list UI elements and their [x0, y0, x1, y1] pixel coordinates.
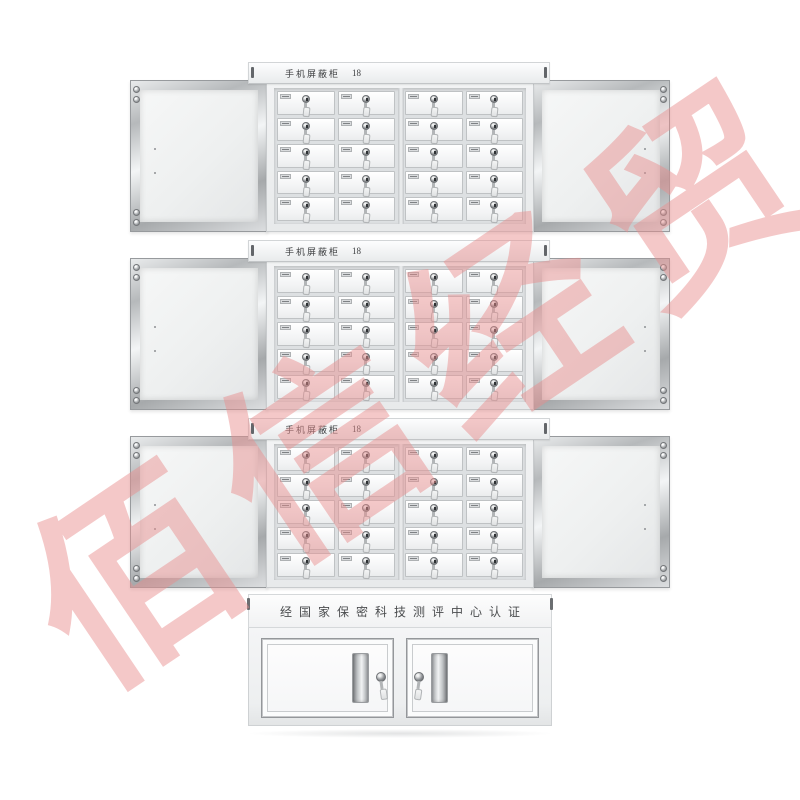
latch-dot — [154, 350, 156, 352]
locker-door — [405, 91, 463, 115]
keyhole-lock-icon — [302, 504, 310, 512]
hinge-pin-icon — [251, 245, 254, 256]
locker-number-tag — [341, 200, 352, 205]
keyhole-lock-icon — [430, 273, 438, 281]
keyhole-lock-icon — [490, 148, 498, 156]
locker-number-tag — [408, 174, 419, 179]
locker-number-tag — [280, 556, 291, 561]
key-with-tag-icon — [432, 209, 435, 213]
left-open-door — [130, 436, 268, 588]
module-capacity: 18 — [352, 68, 361, 78]
locker-number-tag — [341, 378, 352, 383]
key-with-tag-icon — [304, 103, 307, 107]
hinge-screw-icon — [660, 442, 667, 449]
locker-number-tag — [469, 121, 480, 126]
locker-door — [277, 296, 335, 320]
locker-door — [466, 118, 524, 142]
base-door-right — [407, 639, 538, 717]
keyhole-lock-icon — [490, 478, 498, 486]
keyhole-lock-icon — [490, 326, 498, 334]
hinge-screw-icon — [660, 219, 667, 226]
key-with-tag-icon — [304, 512, 307, 516]
locker-door — [338, 553, 396, 577]
locker-number-tag — [469, 94, 480, 99]
locker-number-tag — [341, 299, 352, 304]
locker-number-tag — [280, 200, 291, 205]
key-with-tag-icon — [432, 486, 435, 490]
locker-door — [405, 296, 463, 320]
base-door-left — [262, 639, 393, 717]
certification-strip: 经国家保密科技测评中心认证 — [248, 594, 552, 628]
keyhole-lock-icon — [302, 451, 310, 459]
locker-door — [338, 197, 396, 221]
hinge-screw-icon — [133, 96, 140, 103]
key-with-tag-icon — [364, 308, 367, 312]
keyhole-lock-icon — [362, 478, 370, 486]
locker-number-tag — [408, 556, 419, 561]
keyhole-lock-icon — [302, 95, 310, 103]
hinge-screw-icon — [133, 452, 140, 459]
hinge-screw-icon — [133, 565, 140, 572]
latch-dot — [154, 326, 156, 328]
locker-number-tag — [408, 477, 419, 482]
locker-door — [405, 144, 463, 168]
key-with-tag-icon — [492, 361, 495, 365]
locker-number-tag — [341, 121, 352, 126]
hinge-pin-icon — [247, 598, 250, 610]
locker-number-tag — [408, 121, 419, 126]
locker-door — [405, 474, 463, 498]
locker-number-tag — [408, 503, 419, 508]
locker-door — [277, 171, 335, 195]
locker-number-tag — [469, 503, 480, 508]
locker-door — [405, 500, 463, 524]
locker-door — [277, 197, 335, 221]
locker-door — [277, 91, 335, 115]
keyhole-lock-icon — [430, 353, 438, 361]
keyhole-lock-icon — [362, 201, 370, 209]
locker-number-tag — [280, 147, 291, 152]
hinge-pin-icon — [544, 423, 547, 434]
center-divider — [398, 444, 404, 580]
locker-bay — [274, 444, 526, 580]
locker-door — [405, 269, 463, 293]
locker-number-tag — [469, 325, 480, 330]
keyhole-lock-icon — [302, 478, 310, 486]
locker-number-tag — [280, 121, 291, 126]
key-with-tag-icon — [416, 681, 420, 689]
locker-door — [338, 118, 396, 142]
keyhole-lock-icon — [362, 353, 370, 361]
keyhole-lock-icon — [430, 531, 438, 539]
locker-number-tag — [341, 94, 352, 99]
keyhole-lock-icon — [490, 95, 498, 103]
cabinet-module-2: 手机屏蔽柜18 — [130, 240, 670, 414]
keyhole-lock-icon — [430, 379, 438, 387]
module-title: 手机屏蔽柜 — [285, 67, 340, 80]
locker-door — [277, 375, 335, 399]
locker-door — [466, 527, 524, 551]
latch-dot — [154, 172, 156, 174]
key-with-tag-icon — [364, 512, 367, 516]
locker-number-tag — [408, 272, 419, 277]
locker-door — [405, 553, 463, 577]
locker-door — [338, 171, 396, 195]
module-header: 手机屏蔽柜18 — [248, 240, 550, 262]
module-title: 手机屏蔽柜 — [285, 423, 340, 436]
base-cabinet-body — [248, 628, 552, 726]
locker-number-tag — [280, 272, 291, 277]
key-with-tag-icon — [432, 512, 435, 516]
locker-door — [338, 375, 396, 399]
latch-dot — [154, 504, 156, 506]
locker-number-tag — [341, 272, 352, 277]
hinge-screw-icon — [133, 397, 140, 404]
key-with-tag-icon — [432, 387, 435, 391]
keyhole-lock-icon — [430, 201, 438, 209]
locker-number-tag — [469, 200, 480, 205]
keyhole-lock-icon — [362, 557, 370, 565]
door-inner-panel — [140, 268, 258, 400]
locker-door — [405, 118, 463, 142]
keyhole-lock-icon — [490, 379, 498, 387]
locker-number-tag — [408, 147, 419, 152]
key-with-tag-icon — [432, 130, 435, 134]
locker-number-tag — [469, 352, 480, 357]
key-with-tag-icon — [432, 459, 435, 463]
module-capacity: 18 — [352, 246, 361, 256]
keyhole-lock-icon — [490, 122, 498, 130]
product-photo-shielding-cabinet: 手机屏蔽柜18 手机屏蔽柜18 手机屏蔽柜18 经国家保密科技测评中心认证 佰信… — [0, 0, 800, 800]
hinge-pin-icon — [251, 423, 254, 434]
hinge-pin-icon — [251, 67, 254, 78]
locker-door — [405, 322, 463, 346]
key-with-tag-icon — [304, 281, 307, 285]
keyhole-lock-icon — [302, 148, 310, 156]
locker-number-tag — [341, 325, 352, 330]
locker-number-tag — [469, 450, 480, 455]
key-with-tag-icon — [364, 103, 367, 107]
door-inner-panel — [542, 446, 660, 578]
right-open-door — [532, 80, 670, 232]
hinge-screw-icon — [660, 575, 667, 582]
locker-door — [277, 447, 335, 471]
key-with-tag-icon — [432, 308, 435, 312]
locker-door — [277, 474, 335, 498]
latch-dot — [644, 148, 646, 150]
locker-door — [277, 118, 335, 142]
key-with-tag-icon — [304, 486, 307, 490]
locker-number-tag — [408, 200, 419, 205]
locker-number-tag — [469, 477, 480, 482]
key-with-tag-icon — [492, 103, 495, 107]
hinge-screw-icon — [133, 264, 140, 271]
locker-door — [277, 553, 335, 577]
key-with-tag-icon — [364, 334, 367, 338]
locker-door — [466, 322, 524, 346]
center-divider — [398, 88, 404, 224]
locker-door — [466, 349, 524, 373]
key-with-tag-icon — [432, 361, 435, 365]
locker-number-tag — [341, 450, 352, 455]
locker-bay — [274, 266, 526, 402]
keyhole-lock-icon — [302, 175, 310, 183]
door-handle — [431, 653, 448, 703]
keyhole-lock-icon — [490, 175, 498, 183]
key-with-tag-icon — [432, 281, 435, 285]
latch-dot — [644, 172, 646, 174]
hinge-pin-icon — [544, 245, 547, 256]
latch-dot — [154, 148, 156, 150]
module-body — [266, 261, 534, 410]
locker-number-tag — [341, 556, 352, 561]
locker-number-tag — [469, 147, 480, 152]
locker-door — [466, 91, 524, 115]
key-with-tag-icon — [492, 565, 495, 569]
key-with-tag-icon — [364, 130, 367, 134]
locker-number-tag — [469, 530, 480, 535]
locker-number-tag — [469, 556, 480, 561]
locker-door — [338, 447, 396, 471]
door-handle — [352, 653, 369, 703]
door-inner-panel — [542, 268, 660, 400]
locker-door — [338, 474, 396, 498]
hinge-screw-icon — [660, 452, 667, 459]
locker-door — [338, 269, 396, 293]
key-with-tag-icon — [379, 681, 383, 689]
keyhole-lock-icon — [362, 273, 370, 281]
keyhole-lock-icon — [362, 531, 370, 539]
key-with-tag-icon — [364, 565, 367, 569]
keyhole-lock-icon — [430, 478, 438, 486]
locker-door — [405, 527, 463, 551]
keyhole-lock-icon — [430, 504, 438, 512]
hinge-screw-icon — [660, 264, 667, 271]
locker-door — [466, 269, 524, 293]
key-with-tag-icon — [432, 334, 435, 338]
locker-number-tag — [280, 352, 291, 357]
locker-column-group-left — [276, 268, 396, 400]
key-with-tag-icon — [304, 387, 307, 391]
locker-number-tag — [280, 325, 291, 330]
center-divider — [398, 266, 404, 402]
hinge-pin-icon — [544, 67, 547, 78]
locker-number-tag — [341, 352, 352, 357]
key-with-tag-icon — [364, 281, 367, 285]
key-with-tag-icon — [304, 334, 307, 338]
door-inner-panel — [140, 90, 258, 222]
key-with-tag-icon — [492, 539, 495, 543]
locker-door — [466, 447, 524, 471]
cabinet-module-1: 手机屏蔽柜18 — [130, 62, 670, 236]
module-header: 手机屏蔽柜18 — [248, 418, 550, 440]
locker-door — [466, 144, 524, 168]
key-with-tag-icon — [304, 565, 307, 569]
hinge-screw-icon — [133, 86, 140, 93]
locker-number-tag — [408, 325, 419, 330]
locker-door — [405, 375, 463, 399]
key-with-tag-icon — [432, 565, 435, 569]
hinge-screw-icon — [660, 274, 667, 281]
locker-door — [466, 474, 524, 498]
locker-column-group-right — [404, 268, 524, 400]
locker-number-tag — [341, 174, 352, 179]
keyhole-lock-icon — [430, 122, 438, 130]
keyhole-lock-icon — [430, 95, 438, 103]
keyhole-lock-icon — [302, 326, 310, 334]
key-with-tag-icon — [492, 512, 495, 516]
keyhole-lock-icon — [362, 175, 370, 183]
locker-number-tag — [408, 378, 419, 383]
keyhole-lock-icon — [490, 557, 498, 565]
key-with-tag-icon — [492, 209, 495, 213]
keyhole-lock-icon — [302, 353, 310, 361]
certification-text: 经国家保密科技测评中心认证 — [273, 603, 527, 620]
key-with-tag-icon — [432, 103, 435, 107]
floor-shadow — [250, 729, 550, 738]
hinge-screw-icon — [133, 209, 140, 216]
key-with-tag-icon — [492, 308, 495, 312]
keyhole-lock-icon — [362, 148, 370, 156]
module-body — [266, 439, 534, 588]
left-open-door — [130, 80, 268, 232]
locker-bay — [274, 88, 526, 224]
hinge-pin-icon — [550, 598, 553, 610]
keyhole-lock-icon — [430, 175, 438, 183]
locker-door — [405, 171, 463, 195]
latch-dot — [644, 504, 646, 506]
cabinet-module-3: 手机屏蔽柜18 — [130, 418, 670, 592]
key-with-tag-icon — [432, 183, 435, 187]
locker-door — [466, 500, 524, 524]
key-with-tag-icon — [432, 539, 435, 543]
key-with-tag-icon — [492, 156, 495, 160]
locker-door — [338, 500, 396, 524]
key-with-tag-icon — [364, 209, 367, 213]
door-inner-panel — [140, 446, 258, 578]
hinge-screw-icon — [660, 397, 667, 404]
key-with-tag-icon — [364, 486, 367, 490]
hinge-screw-icon — [660, 565, 667, 572]
locker-door — [466, 171, 524, 195]
latch-dot — [644, 326, 646, 328]
locker-number-tag — [408, 299, 419, 304]
key-with-tag-icon — [364, 361, 367, 365]
locker-number-tag — [280, 174, 291, 179]
key-with-tag-icon — [492, 387, 495, 391]
locker-door — [466, 197, 524, 221]
keyhole-lock-icon — [362, 504, 370, 512]
hinge-screw-icon — [660, 209, 667, 216]
locker-number-tag — [341, 503, 352, 508]
keyhole-lock-icon — [490, 201, 498, 209]
locker-column-group-right — [404, 446, 524, 578]
locker-door — [277, 144, 335, 168]
left-open-door — [130, 258, 268, 410]
keyhole-lock-icon — [362, 95, 370, 103]
right-open-door — [532, 258, 670, 410]
locker-number-tag — [341, 147, 352, 152]
locker-number-tag — [408, 352, 419, 357]
locker-door — [277, 349, 335, 373]
key-with-tag-icon — [364, 539, 367, 543]
key-with-tag-icon — [492, 183, 495, 187]
keyhole-lock-icon — [362, 326, 370, 334]
keyhole-lock-icon — [430, 557, 438, 565]
locker-door — [338, 322, 396, 346]
locker-door — [405, 197, 463, 221]
keyhole-lock-icon — [302, 122, 310, 130]
keyhole-lock-icon — [362, 122, 370, 130]
locker-number-tag — [408, 450, 419, 455]
locker-number-tag — [280, 503, 291, 508]
base-cabinet: 经国家保密科技测评中心认证 — [248, 594, 552, 732]
keyhole-lock-icon — [490, 531, 498, 539]
keyhole-lock-icon — [302, 273, 310, 281]
keyhole-lock-icon — [362, 451, 370, 459]
key-with-tag-icon — [304, 459, 307, 463]
key-with-tag-icon — [364, 459, 367, 463]
locker-number-tag — [341, 477, 352, 482]
locker-number-tag — [469, 272, 480, 277]
locker-number-tag — [341, 530, 352, 535]
hinge-screw-icon — [133, 442, 140, 449]
hinge-screw-icon — [660, 387, 667, 394]
locker-number-tag — [469, 299, 480, 304]
locker-number-tag — [280, 477, 291, 482]
keyhole-lock-icon — [430, 300, 438, 308]
keyhole-lock-icon — [490, 504, 498, 512]
locker-number-tag — [408, 94, 419, 99]
keyhole-lock-icon — [490, 451, 498, 459]
hinge-screw-icon — [133, 387, 140, 394]
key-with-tag-icon — [492, 486, 495, 490]
key-with-tag-icon — [492, 281, 495, 285]
locker-column-group-right — [404, 90, 524, 222]
keyhole-lock-icon — [490, 353, 498, 361]
keyhole-lock-icon — [302, 201, 310, 209]
keyhole-lock-icon — [430, 451, 438, 459]
module-title: 手机屏蔽柜 — [285, 245, 340, 258]
locker-door — [466, 296, 524, 320]
key-with-tag-icon — [304, 156, 307, 160]
locker-door — [405, 349, 463, 373]
key-with-tag-icon — [304, 130, 307, 134]
key-with-tag-icon — [304, 539, 307, 543]
keyhole-lock-icon — [362, 300, 370, 308]
key-with-tag-icon — [304, 361, 307, 365]
locker-door — [277, 500, 335, 524]
key-with-tag-icon — [364, 156, 367, 160]
key-with-tag-icon — [492, 459, 495, 463]
keyhole-lock-icon — [362, 379, 370, 387]
locker-number-tag — [280, 378, 291, 383]
keyhole-lock-icon — [302, 379, 310, 387]
key-with-tag-icon — [364, 387, 367, 391]
locker-door — [466, 553, 524, 577]
key-with-tag-icon — [492, 334, 495, 338]
key-with-tag-icon — [304, 183, 307, 187]
locker-door — [338, 144, 396, 168]
locker-number-tag — [280, 299, 291, 304]
keyhole-lock-icon — [302, 531, 310, 539]
module-body — [266, 83, 534, 232]
locker-number-tag — [280, 94, 291, 99]
locker-number-tag — [280, 530, 291, 535]
locker-number-tag — [408, 530, 419, 535]
locker-column-group-left — [276, 446, 396, 578]
hinge-screw-icon — [133, 219, 140, 226]
